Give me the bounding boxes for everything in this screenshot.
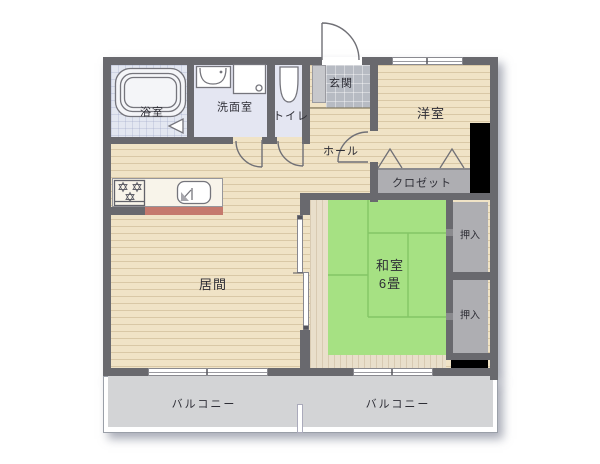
sliding-door-icon: [293, 216, 309, 330]
floor-plan: 浴室 洗面室 トイレ 玄関 ホール 洋室 クロゼット 居間 和室 6畳 押入 押…: [0, 0, 600, 464]
stove-icon: [115, 181, 145, 206]
room-label-oshiire-lower: 押入: [460, 309, 480, 323]
room-label-hall: ホール: [323, 145, 359, 160]
room-label-living-room: 居間: [199, 276, 227, 294]
room-label-toilet: トイレ: [273, 110, 309, 125]
washing-machine-pan-icon: [234, 65, 266, 94]
room-label-entrance: 玄関: [329, 77, 353, 92]
room-label-japanese-room: 和室: [376, 257, 404, 275]
sink-icon: [178, 182, 211, 204]
room-label-balcony-right: バルコニー: [366, 398, 431, 413]
room-label-oshiire-upper: 押入: [460, 229, 480, 243]
pillar-nub: [446, 229, 453, 320]
room-label-balcony-left: バルコニー: [172, 398, 237, 413]
fixtures-overlay: [0, 0, 600, 464]
room-label-washroom: 洗面室: [217, 101, 253, 116]
folding-door-icon: [169, 119, 183, 133]
room-label-closet: クロゼット: [392, 177, 452, 192]
toilet-bowl-icon: [280, 67, 298, 102]
room-label-western-room: 洋室: [417, 105, 445, 123]
room-label-bathroom: 浴室: [140, 106, 164, 121]
folding-door-icon: [378, 149, 464, 168]
washbasin-icon: [197, 67, 231, 88]
room-size-japanese-room: 6畳: [379, 275, 401, 293]
